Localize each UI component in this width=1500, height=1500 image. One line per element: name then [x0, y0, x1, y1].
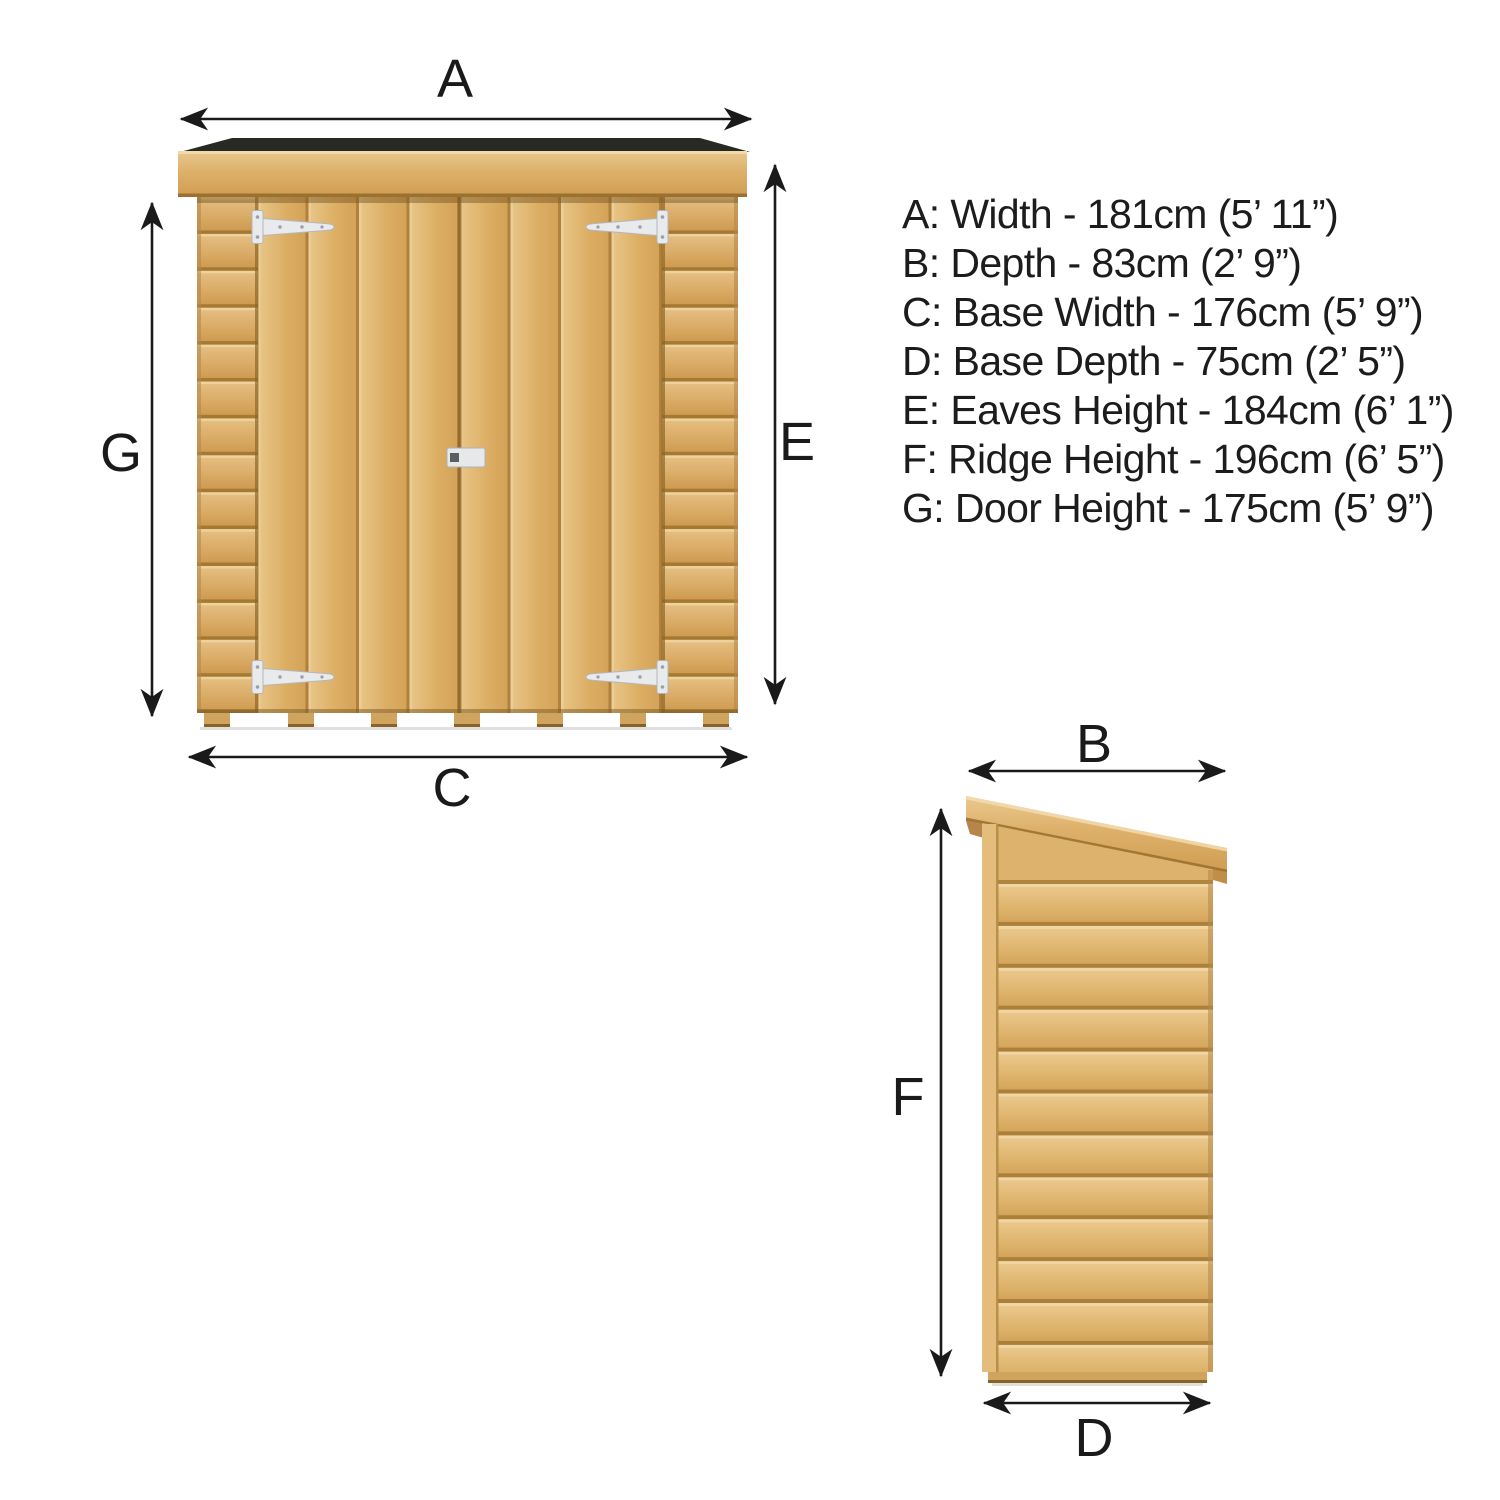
fascia-highlight [178, 151, 747, 154]
under-fascia-shadow [197, 197, 738, 203]
label-ridge-height-f: F [892, 1067, 925, 1127]
roof-fascia-board [178, 151, 747, 197]
side-corner-trim [982, 824, 998, 1372]
door-latch-icon [447, 448, 485, 467]
side-right-edge [1208, 870, 1213, 1372]
label-width-a: A [437, 49, 473, 109]
front-left-corner-edge [197, 197, 201, 713]
side-elevation-illustration [966, 796, 1227, 1386]
side-corner-trim-edge [996, 824, 999, 1372]
label-base-depth-d: D [1075, 1408, 1114, 1468]
dimension-line-width: A: Width - 181cm (5’ 11”) [902, 190, 1454, 239]
side-base-skid [988, 1372, 1207, 1386]
dimension-line-door-height: G: Door Height - 175cm (5’ 9”) [902, 484, 1454, 533]
side-top-board-edge [982, 880, 1213, 884]
label-depth-b: B [1076, 714, 1112, 774]
dimension-line-base-width: C: Base Width - 176cm (5’ 9”) [902, 288, 1454, 337]
label-base-width-c: C [433, 758, 472, 818]
left-door [258, 197, 460, 713]
roof-felt [180, 138, 750, 152]
side-wall-cladding [982, 884, 1213, 1372]
label-door-height-g: G [100, 423, 142, 483]
dimension-line-base-depth: D: Base Depth - 75cm (2’ 5”) [902, 337, 1454, 386]
front-right-corner-edge [734, 197, 738, 713]
right-door-jamb [662, 197, 666, 713]
left-door-jamb [255, 197, 259, 713]
dimension-line-ridge-height: F: Ridge Height - 196cm (6’ 5”) [902, 435, 1454, 484]
wall-bottom-shadow [197, 709, 738, 713]
dimension-line-depth: B: Depth - 83cm (2’ 9”) [902, 239, 1454, 288]
label-eaves-height-e: E [779, 412, 815, 472]
right-door [460, 197, 662, 713]
front-elevation-illustration [178, 138, 750, 730]
dimension-line-eaves-height: E: Eaves Height - 184cm (6’ 1”) [902, 386, 1454, 435]
dimension-list: A: Width - 181cm (5’ 11”) B: Depth - 83c… [902, 190, 1454, 533]
shed-dimension-diagram: A G E C B F D A: Width - 181cm (5’ 11”) … [0, 0, 1500, 1500]
front-base-skids [200, 713, 732, 730]
fascia-shadow-edge [178, 194, 747, 198]
